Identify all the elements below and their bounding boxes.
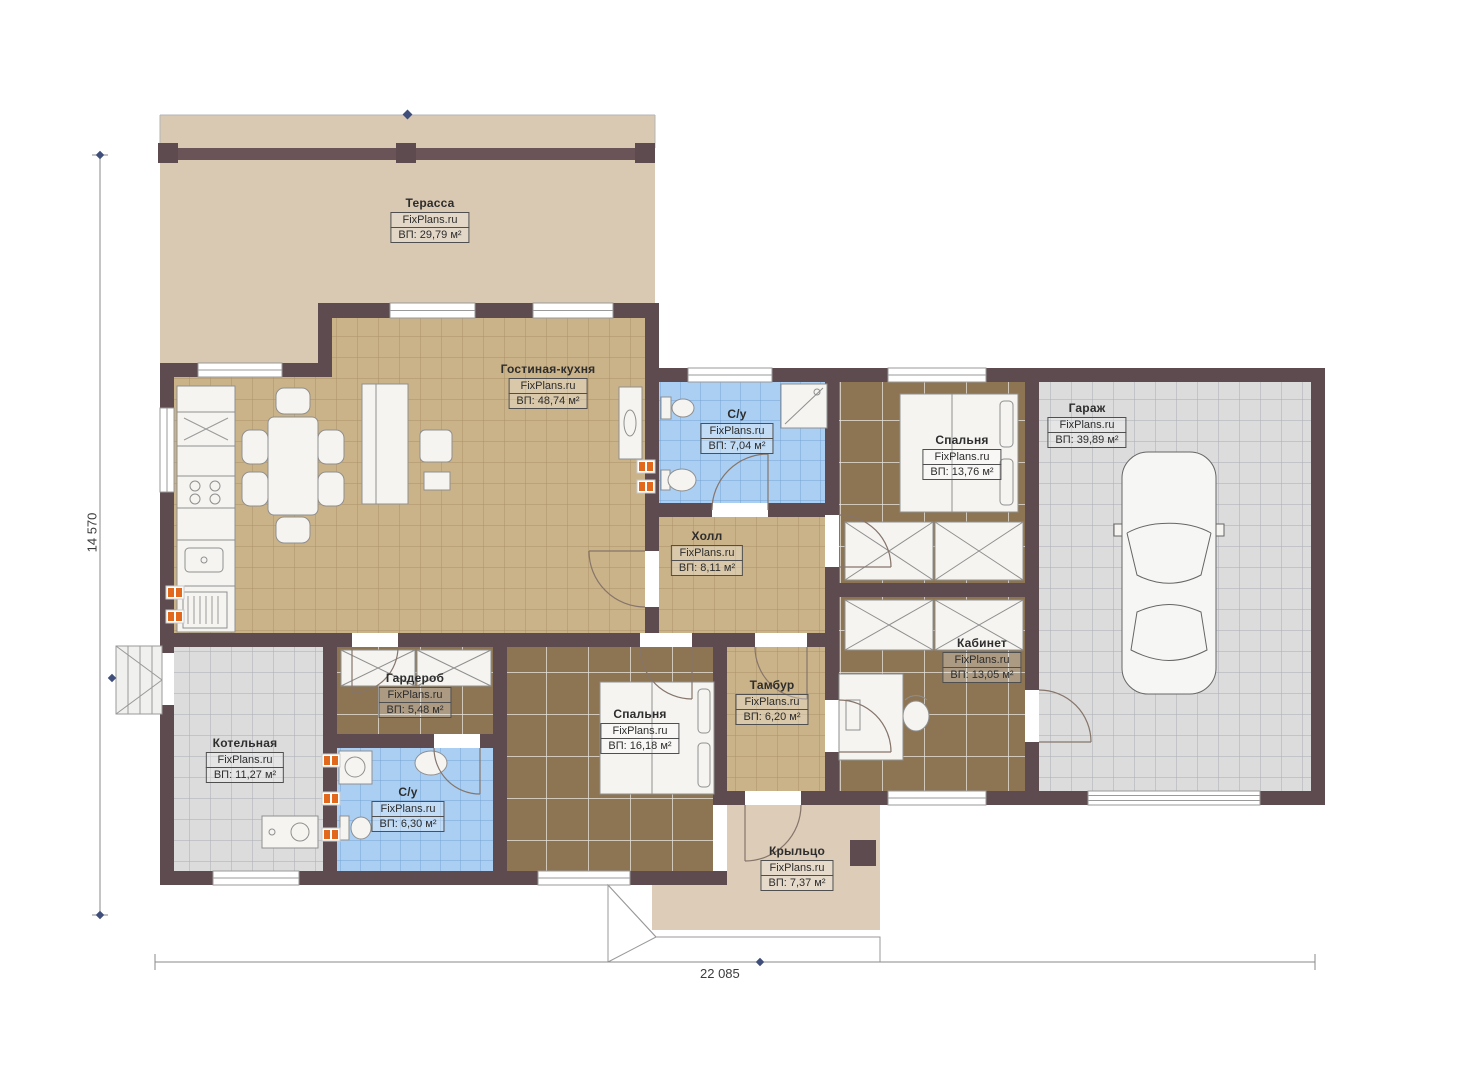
shower: [781, 384, 827, 428]
room-area: ВП: 6,20 м²: [735, 709, 808, 725]
dimension-width: 22 085: [700, 966, 740, 981]
room-label-boiler-room: Котельная FixPlans.ru ВП: 11,27 м²: [206, 736, 284, 783]
room-label-hall: Холл FixPlans.ru ВП: 8,11 м²: [671, 529, 743, 576]
brand-label: FixPlans.ru: [922, 449, 1001, 465]
wall-segment: [318, 303, 332, 377]
radiator: [166, 586, 184, 599]
radiator: [322, 754, 340, 767]
sink-top: [661, 469, 696, 491]
entry-steps: [108, 646, 162, 714]
room-label-porch: Крыльцо FixPlans.ru ВП: 7,37 м²: [760, 844, 833, 891]
boiler-equipment: [262, 816, 318, 848]
porch-post: [850, 840, 876, 866]
room-name: Спальня: [600, 707, 679, 721]
wall-segment: [713, 633, 727, 805]
room-name: Крыльцо: [760, 844, 833, 858]
toilet-bottom: [340, 816, 371, 840]
room-area: ВП: 29,79 м²: [390, 227, 469, 243]
room-area: ВП: 13,05 м²: [942, 667, 1021, 683]
dimension-height: 14 570: [84, 513, 99, 553]
room-name: Тамбур: [735, 678, 808, 692]
brand-label: FixPlans.ru: [671, 545, 743, 561]
brand-label: FixPlans.ru: [371, 801, 444, 817]
room-label-garage: Гараж FixPlans.ru ВП: 39,89 м²: [1047, 401, 1126, 448]
room-label-office: Кабинет FixPlans.ru ВП: 13,05 м²: [942, 636, 1021, 683]
brand-label: FixPlans.ru: [390, 212, 469, 228]
room-area: ВП: 11,27 м²: [206, 767, 284, 783]
room-area: ВП: 7,37 м²: [760, 875, 833, 891]
room-name: С/у: [371, 785, 444, 799]
brand-label: FixPlans.ru: [1047, 417, 1126, 433]
room-area: ВП: 39,89 м²: [1047, 432, 1126, 448]
room-area: ВП: 7,04 м²: [700, 438, 773, 454]
brand-label: FixPlans.ru: [600, 723, 679, 739]
wall-segment: [1311, 368, 1325, 805]
room-area: ВП: 13,76 м²: [922, 464, 1001, 480]
floor-plan-page: Терасса FixPlans.ru ВП: 29,79 м² Гостина…: [0, 0, 1474, 1080]
radiator: [322, 828, 340, 841]
room-name: Гостиная-кухня: [501, 362, 596, 376]
room-label-bathroom-top: С/у FixPlans.ru ВП: 7,04 м²: [700, 407, 773, 454]
kitchen-counter: [177, 386, 235, 632]
radiator: [637, 480, 655, 493]
brand-label: FixPlans.ru: [508, 378, 587, 394]
room-name: Кабинет: [942, 636, 1021, 650]
wall-segment: [493, 647, 507, 885]
radiator: [637, 460, 655, 473]
room-label-living-kitchen: Гостиная-кухня FixPlans.ru ВП: 48,74 м²: [501, 362, 596, 409]
room-name: Гараж: [1047, 401, 1126, 415]
brand-label: FixPlans.ru: [378, 687, 451, 703]
room-label-wardrobe: Гардероб FixPlans.ru ВП: 5,48 м²: [378, 671, 451, 718]
brand-label: FixPlans.ru: [206, 752, 284, 768]
brand-label: FixPlans.ru: [760, 860, 833, 876]
room-label-bedroom-top: Спальня FixPlans.ru ВП: 13,76 м²: [922, 433, 1001, 480]
wall-segment: [839, 583, 1025, 597]
radiator: [322, 792, 340, 805]
room-label-terrace: Терасса FixPlans.ru ВП: 29,79 м²: [390, 196, 469, 243]
sink-bottom: [415, 751, 447, 775]
room-area: ВП: 8,11 м²: [671, 560, 743, 576]
room-name: Терасса: [390, 196, 469, 210]
brand-label: FixPlans.ru: [942, 652, 1021, 668]
room-label-bathroom-bottom: С/у FixPlans.ru ВП: 6,30 м²: [371, 785, 444, 832]
room-name: Гардероб: [378, 671, 451, 685]
garage-door: [1088, 791, 1260, 805]
room-name: Котельная: [206, 736, 284, 750]
car: [1114, 452, 1224, 694]
brand-label: FixPlans.ru: [700, 423, 773, 439]
room-area: ВП: 5,48 м²: [378, 702, 451, 718]
room-name: Холл: [671, 529, 743, 543]
toilet-top: [661, 397, 694, 419]
room-label-tambour: Тамбур FixPlans.ru ВП: 6,20 м²: [735, 678, 808, 725]
room-area: ВП: 16,18 м²: [600, 738, 679, 754]
brand-label: FixPlans.ru: [735, 694, 808, 710]
room-area: ВП: 48,74 м²: [508, 393, 587, 409]
room-area: ВП: 6,30 м²: [371, 816, 444, 832]
radiator: [166, 610, 184, 623]
tv-stand: [619, 387, 642, 459]
room-label-bedroom-bottom: Спальня FixPlans.ru ВП: 16,18 м²: [600, 707, 679, 754]
washing-machine: [339, 751, 372, 784]
room-name: С/у: [700, 407, 773, 421]
room-name: Спальня: [922, 433, 1001, 447]
